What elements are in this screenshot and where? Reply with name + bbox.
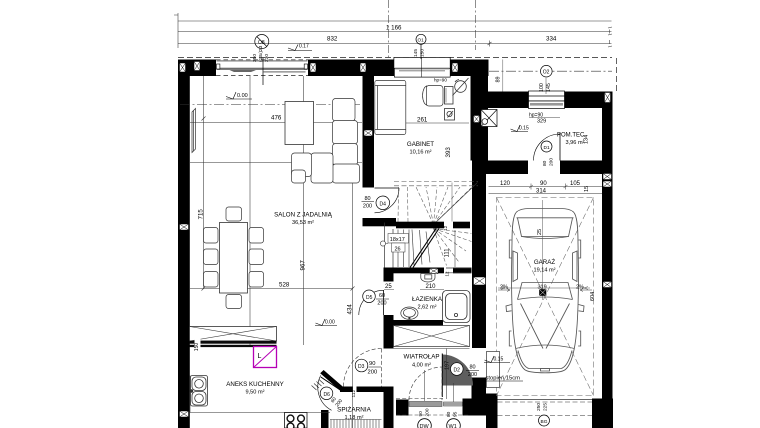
svg-text:134: 134 bbox=[584, 135, 590, 144]
svg-text:SALON Z JADALNIĄ: SALON Z JADALNIĄ bbox=[274, 212, 333, 219]
svg-text:O2: O2 bbox=[543, 70, 550, 76]
svg-text:0.00: 0.00 bbox=[325, 320, 335, 326]
svg-text:200: 200 bbox=[363, 204, 372, 210]
svg-text:604: 604 bbox=[590, 292, 596, 301]
svg-text:12: 12 bbox=[443, 225, 448, 231]
svg-text:25: 25 bbox=[537, 229, 543, 235]
svg-text:hp=90: hp=90 bbox=[434, 78, 447, 83]
svg-text:D3: D3 bbox=[358, 364, 365, 370]
svg-text:(13x)23: (13x)23 bbox=[258, 45, 264, 62]
svg-text:60: 60 bbox=[379, 293, 385, 299]
svg-text:120: 120 bbox=[500, 181, 511, 187]
svg-text:26: 26 bbox=[395, 247, 401, 253]
svg-text:210: 210 bbox=[426, 284, 437, 290]
svg-text:225: 225 bbox=[543, 403, 549, 411]
svg-text:197: 197 bbox=[445, 361, 451, 370]
svg-text:0.15: 0.15 bbox=[494, 357, 504, 363]
svg-text:O1: O1 bbox=[418, 38, 425, 43]
svg-text:150: 150 bbox=[194, 343, 200, 352]
svg-text:D1: D1 bbox=[544, 145, 550, 151]
svg-text:145: 145 bbox=[546, 83, 552, 92]
svg-text:112: 112 bbox=[351, 390, 357, 398]
svg-text:D5: D5 bbox=[366, 295, 373, 301]
svg-text:150: 150 bbox=[420, 49, 426, 57]
svg-text:25: 25 bbox=[385, 284, 392, 290]
svg-text:90: 90 bbox=[418, 411, 424, 417]
svg-text:145: 145 bbox=[413, 49, 419, 57]
svg-text:89: 89 bbox=[496, 76, 502, 82]
svg-text:3,96 m²: 3,96 m² bbox=[566, 140, 585, 146]
svg-text:O8: O8 bbox=[258, 40, 265, 46]
svg-text:DW: DW bbox=[420, 424, 430, 428]
svg-text:314: 314 bbox=[536, 189, 547, 195]
svg-text:476: 476 bbox=[271, 115, 282, 122]
svg-text:D2: D2 bbox=[454, 368, 461, 374]
svg-text:2%: 2% bbox=[500, 285, 508, 291]
svg-text:0.17: 0.17 bbox=[299, 44, 309, 50]
svg-text:250: 250 bbox=[252, 54, 258, 62]
svg-text:90: 90 bbox=[369, 361, 375, 367]
svg-text:715: 715 bbox=[198, 209, 205, 220]
svg-text:D4: D4 bbox=[380, 201, 387, 207]
svg-text:261: 261 bbox=[417, 117, 428, 124]
svg-text:0.00: 0.00 bbox=[237, 93, 248, 99]
svg-text:12: 12 bbox=[445, 271, 450, 277]
svg-text:90: 90 bbox=[540, 181, 547, 187]
svg-text:ANEKS KUCHENNY: ANEKS KUCHENNY bbox=[226, 381, 283, 388]
svg-text:19,14 m²: 19,14 m² bbox=[533, 268, 555, 274]
svg-text:POM.TEC.: POM.TEC. bbox=[557, 133, 586, 139]
svg-text:GABINET: GABINET bbox=[407, 141, 434, 148]
svg-text:80: 80 bbox=[364, 196, 370, 202]
svg-text:200: 200 bbox=[368, 370, 378, 376]
svg-text:230: 230 bbox=[264, 54, 270, 62]
svg-text:528: 528 bbox=[279, 282, 290, 289]
svg-text:200: 200 bbox=[468, 372, 477, 378]
svg-text:100: 100 bbox=[539, 83, 545, 92]
svg-text:393: 393 bbox=[445, 147, 452, 158]
svg-text:80: 80 bbox=[469, 365, 475, 371]
svg-text:967: 967 bbox=[300, 260, 307, 271]
svg-text:200: 200 bbox=[425, 408, 431, 416]
svg-text:SPIŻARNIA: SPIŻARNIA bbox=[337, 405, 371, 414]
svg-text:BG: BG bbox=[541, 419, 548, 425]
svg-text:4,00 m²: 4,00 m² bbox=[412, 363, 431, 369]
svg-text:36,53 m²: 36,53 m² bbox=[292, 220, 314, 226]
svg-text:ŁAZIENKA: ŁAZIENKA bbox=[412, 296, 443, 303]
svg-text:105: 105 bbox=[570, 181, 581, 187]
svg-text:434: 434 bbox=[347, 304, 354, 315]
svg-text:95: 95 bbox=[453, 411, 459, 417]
svg-text:80: 80 bbox=[446, 411, 452, 417]
svg-text:0.15: 0.15 bbox=[519, 126, 529, 132]
svg-text:GARAŻ: GARAŻ bbox=[534, 259, 556, 266]
svg-text:18x17: 18x17 bbox=[390, 237, 405, 243]
svg-text:10,16 m²: 10,16 m² bbox=[409, 150, 431, 156]
svg-text:200: 200 bbox=[377, 301, 386, 307]
svg-text:WIATROŁAP: WIATROŁAP bbox=[404, 354, 440, 361]
svg-text:9,50 m²: 9,50 m² bbox=[246, 390, 265, 396]
svg-text:2,62 m²: 2,62 m² bbox=[418, 305, 437, 311]
svg-text:250: 250 bbox=[536, 403, 542, 411]
svg-text:80: 80 bbox=[542, 160, 548, 166]
svg-text:W1: W1 bbox=[449, 424, 457, 428]
svg-text:832: 832 bbox=[327, 36, 338, 43]
svg-text:15: 15 bbox=[584, 186, 590, 192]
svg-text:D6: D6 bbox=[324, 392, 331, 398]
svg-text:200: 200 bbox=[549, 158, 555, 166]
svg-text:111: 111 bbox=[445, 248, 451, 258]
svg-text:2%: 2% bbox=[576, 285, 584, 291]
svg-text:329: 329 bbox=[537, 119, 546, 125]
svg-text:L: L bbox=[258, 353, 262, 360]
svg-text:stopień 15cm: stopień 15cm bbox=[486, 376, 521, 382]
svg-text:334: 334 bbox=[546, 36, 557, 43]
